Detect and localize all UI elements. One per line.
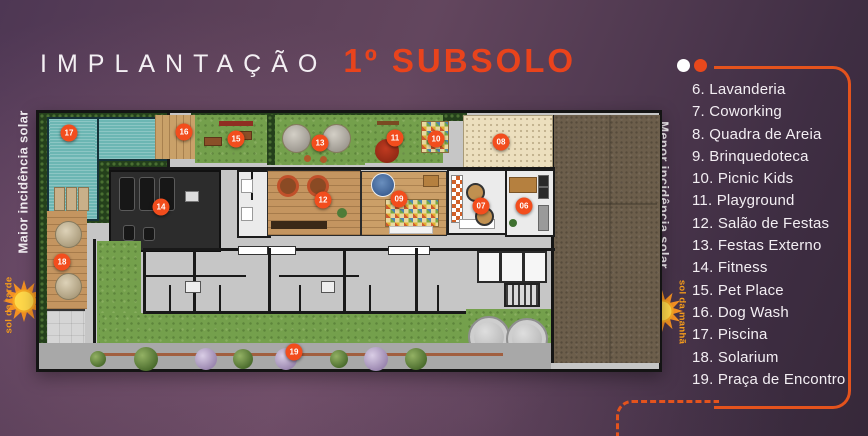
legend-item: 17. Piscina [692, 324, 845, 346]
legend-item: 13. Festas Externo [692, 235, 845, 257]
page-title: IMPLANTAÇÃO 1º SUBSOLO [40, 42, 576, 80]
plan-marker-09: 09 [391, 191, 408, 208]
pool-lounger [54, 187, 65, 211]
wall-line [169, 285, 171, 313]
plan-marker-12: 12 [315, 192, 332, 209]
window-sill [238, 246, 268, 255]
legend-item: 7. Coworking [692, 101, 845, 123]
bench-row [219, 121, 253, 126]
washing-machine [538, 187, 549, 199]
gym-equipment [143, 227, 155, 241]
elevator [523, 251, 547, 283]
legend-dot-white [677, 59, 690, 72]
elevator [500, 251, 524, 283]
legend-item: 9. Brinquedoteca [692, 146, 845, 168]
wall-line [415, 248, 418, 313]
playground-equipment [377, 121, 399, 125]
plan-marker-16: 16 [176, 124, 193, 141]
floor-plan: 06 07 08 09 10 11 12 13 14 15 16 17 18 1… [36, 110, 662, 372]
bush [233, 349, 253, 369]
party-canopy [282, 124, 311, 153]
plan-marker-14: 14 [153, 199, 170, 216]
legend-item: 11. Playground [692, 190, 845, 212]
gym-equipment [119, 177, 135, 211]
plan-marker-06: 06 [516, 198, 533, 215]
chair [320, 156, 327, 163]
playroom-shelf [389, 226, 433, 234]
legend: 6. Lavanderia 7. Coworking 8. Quadra de … [692, 79, 845, 391]
legend-dashed-line [616, 400, 719, 436]
window-sill [388, 246, 430, 255]
picnic-table [204, 137, 222, 146]
laundry-table [509, 177, 537, 193]
plan-marker-11: 11 [387, 130, 404, 147]
legend-item: 18. Solarium [692, 347, 845, 369]
plan-marker-18: 18 [54, 254, 71, 271]
wall-line [93, 239, 96, 343]
green-pouf [337, 208, 347, 218]
legend-item: 8. Quadra de Areia [692, 124, 845, 146]
earth-grid-line [609, 115, 611, 363]
plan-marker-08: 08 [493, 134, 510, 151]
pool-lounger [78, 187, 89, 211]
plant [509, 219, 517, 227]
label-maior-incidencia: Maior incidência solar [16, 110, 31, 253]
plan-marker-10: 10 [428, 131, 445, 148]
legend-item: 6. Lavanderia [692, 79, 845, 101]
solarium-umbrella [55, 221, 82, 248]
party-counter [271, 221, 327, 229]
wall-line [299, 285, 301, 313]
fixture [321, 281, 335, 293]
solarium-umbrella [55, 273, 82, 300]
pool-lounger [66, 187, 77, 211]
bush [330, 350, 348, 368]
bush [90, 351, 106, 367]
fixture [241, 207, 253, 221]
presentation-slide: IMPLANTAÇÃO 1º SUBSOLO Maior incidência … [0, 0, 868, 436]
path-edge [103, 353, 503, 356]
wall-line [146, 275, 246, 277]
playroom-table [423, 175, 439, 187]
wall-line [369, 285, 371, 313]
wall-line [143, 248, 146, 313]
party-table [277, 175, 299, 197]
plan-marker-15: 15 [228, 131, 245, 148]
title-regular: IMPLANTAÇÃO [40, 50, 327, 79]
bush [405, 348, 427, 370]
chair [304, 155, 311, 162]
plan-marker-13: 13 [312, 135, 329, 152]
window-sill [268, 246, 296, 255]
wall-line [143, 311, 477, 314]
wall-line [219, 285, 221, 313]
legend-item: 15. Pet Place [692, 280, 845, 302]
hedge-strip [39, 209, 47, 359]
gym-equipment [185, 191, 199, 202]
legend-item: 16. Dog Wash [692, 302, 845, 324]
legend-item: 19. Praça de Encontro [692, 369, 845, 391]
earth-grid-line [579, 203, 657, 205]
legend-item: 14. Fitness [692, 257, 845, 279]
plan-marker-19: 19 [286, 344, 303, 361]
hedge-strip [267, 115, 275, 165]
fixture [185, 281, 201, 293]
title-accent: 1º SUBSOLO [343, 42, 576, 80]
legend-item: 12. Salão de Festas [692, 213, 845, 235]
wall-line [268, 248, 271, 313]
stairs [504, 283, 540, 307]
bush [195, 348, 217, 370]
earth-area [551, 115, 660, 363]
wall-line [437, 285, 439, 313]
wall-line [343, 248, 346, 313]
courtyard-lawn [100, 313, 476, 343]
bush [364, 347, 388, 371]
elevator [477, 251, 501, 283]
wall-line [279, 275, 359, 277]
laundry-cabinet [538, 205, 549, 231]
plan-marker-17: 17 [61, 125, 78, 142]
fixture [241, 179, 253, 193]
plan-marker-07: 07 [473, 198, 490, 215]
bush [134, 347, 158, 371]
legend-dot-orange [694, 59, 707, 72]
legend-item: 10. Picnic Kids [692, 168, 845, 190]
gym-equipment [123, 225, 135, 241]
washing-machine [538, 175, 549, 187]
coworking-shelf [451, 175, 463, 223]
